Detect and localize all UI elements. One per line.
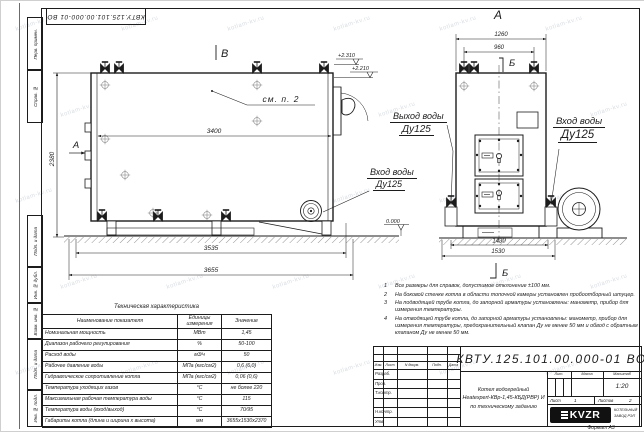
sheet-edge-line (19, 3, 20, 429)
cell: Габариты котла (длина и ширина х высота) (43, 417, 178, 428)
logo-subtitle: КОТЕЛЬНЫЙ ЗАВОД РЭП (614, 408, 637, 420)
cell: Температура воды (вход/выход) (43, 406, 178, 417)
logo-subtitle-line: ЗАВОД РЭП (614, 414, 637, 420)
note-text: На отводящей трубе котла, до запорной ар… (395, 316, 638, 337)
cell: 3655х1530х2370 (222, 417, 272, 428)
col-header: Единицы измерения (178, 315, 222, 329)
role-nkontr: Н.контр. (375, 409, 393, 414)
notes-block: 1Все размеры для справок, допустимое отк… (384, 283, 638, 339)
table-row: Диапазон рабочего регулирования%50-100 (43, 340, 272, 351)
table-row: Габариты котла (длина и ширина х высота)… (43, 417, 272, 428)
col-list: Лист (383, 363, 397, 367)
sheet-label: Лист (550, 398, 561, 403)
col-izm: Изм. (374, 363, 383, 367)
note-item: 1Все размеры для справок, допустимое отк… (384, 283, 638, 290)
role-tkontr: Т.контр. (375, 390, 392, 395)
drawing-sheet: kotlam-kv.rukotlam-kv.rukotlam-kv.rukotl… (0, 0, 644, 432)
cell: Температура уходящих газов (43, 384, 178, 395)
inlet-water-front-label: Вход воды (553, 117, 605, 128)
kvzr-logo: KVZR (550, 407, 611, 423)
role-razrab: Разраб. (375, 371, 390, 376)
note-item: 3На подводящей трубе котла, до запорной … (384, 300, 638, 314)
margin-label: Подп. и дата (33, 350, 38, 379)
margin-cell-podp-data-1: Подп. и дата (27, 215, 43, 268)
margin-label: Инв. № подл. (33, 394, 38, 423)
inlet-water-side-label: Вход воды (367, 168, 417, 179)
inlet-water-side-dn-label: Ду125 (373, 180, 405, 191)
outlet-water-label: Выход воды (390, 112, 447, 123)
table-row: Температура уходящих газов°Сне более 220 (43, 384, 272, 395)
logo-text: KVZR (570, 409, 601, 421)
note-number: 3 (384, 300, 395, 314)
inlet-water-front-dn-label: Ду125 (558, 129, 597, 143)
note-text: На подводящей трубе котла, до запорной а… (395, 300, 638, 314)
format-note: Формат А3 (561, 425, 641, 431)
cell: °С (178, 395, 222, 406)
margin-cell-inv-dubl: Инв. № дубл. (27, 266, 43, 304)
note-number: 4 (384, 316, 395, 337)
cell: 1,45 (222, 329, 272, 340)
role-utv: Утв. (375, 419, 385, 424)
sheets-label: Листов (598, 398, 613, 403)
cell: Номинальная мощность (43, 329, 178, 340)
margin-label: Справ. № (33, 86, 38, 107)
margin-cell-inv-podl: Инв. № подл. (27, 389, 43, 427)
top-doc-number-stamp: КВТУ.125.101.00.000-01 ВО (46, 8, 146, 25)
margin-cell-sprav-n: Справ. № (27, 69, 43, 123)
cell: МПа (кгс/см2) (178, 373, 222, 384)
scale-label: Масштаб (603, 372, 641, 376)
cell: 50 (222, 351, 272, 362)
col-podp: Подп. (427, 363, 447, 367)
table-row: Расход водым3/ч50 (43, 351, 272, 362)
product-line: Heatexpert-КВр-1,45-КБД(РВР) И (462, 394, 544, 402)
cell: % (178, 340, 222, 351)
cell: °С (178, 406, 222, 417)
cell: 70/95 (222, 406, 272, 417)
margin-label: Перв. примен. (33, 29, 38, 60)
col-header: Наименование показателя (43, 315, 178, 329)
sheet-number: 1 (574, 398, 577, 403)
margin-cell-podp-data-2: Подп. и дата (27, 338, 43, 391)
tech-header-row: Наименование показателя Единицы измерени… (43, 315, 272, 329)
cell: м3/ч (178, 351, 222, 362)
margin-cell-perv-primen: Перв. примен. (27, 17, 43, 71)
sheets-number: 2 (629, 398, 632, 403)
product-line: по техническому заданию (470, 403, 537, 411)
note-item: 2На боковой стенке котла в области топоч… (384, 292, 638, 299)
cell: °С (178, 384, 222, 395)
col-header: Значение (222, 315, 272, 329)
table-row: Максимальная рабочая температура воды°С1… (43, 395, 272, 406)
cell: Рабочее давление воды (43, 362, 178, 373)
note-text: Все размеры для справок, допустимое откл… (395, 283, 550, 290)
note-item: 4На отводящей трубе котла, до запорной а… (384, 316, 638, 337)
cell: не более 220 (222, 384, 272, 395)
table-row: Рабочее давление водыМПа (кгс/см2)0,6 (6… (43, 362, 272, 373)
title-block: Изм. Лист N докум. Подп. Дата Разраб. Пр… (373, 346, 642, 427)
cell: Расход воды (43, 351, 178, 362)
mass-label: Масса (571, 372, 603, 376)
product-line: Котел водогрейный (478, 386, 529, 394)
scale-value: 1:20 (603, 383, 641, 390)
table-row: Гидравлическое сопротивление котлаМПа (к… (43, 373, 272, 384)
tech-table-title: Техническая характеристика (42, 304, 271, 310)
cell: Максимальная рабочая температура воды (43, 395, 178, 406)
margin-label: Взам. инв. № (33, 307, 38, 335)
doc-number: КВТУ.125.101.00.000-01 ВО (460, 347, 642, 372)
logo-stripes-icon (561, 411, 568, 419)
cell: Диапазон рабочего регулирования (43, 340, 178, 351)
margin-cell-vzam-inv: Взам. инв. № (27, 302, 43, 340)
note-number: 1 (384, 283, 395, 290)
cell: МВт (178, 329, 222, 340)
role-prov: Пров. (375, 381, 386, 386)
cell: Гидравлическое сопротивление котла (43, 373, 178, 384)
cell: МПа (кгс/см2) (178, 362, 222, 373)
margin-label: Подп. и дата (33, 227, 38, 256)
margin-label: Инв. № дубл. (33, 271, 38, 299)
table-row: Температура воды (вход/выход)°С70/95 (43, 406, 272, 417)
cell: 0,06 (0,6) (222, 373, 272, 384)
cell: мм (178, 417, 222, 428)
table-row: Номинальная мощностьМВт1,45 (43, 329, 272, 340)
note-text: На боковой стенке котла в области топочн… (395, 292, 635, 299)
tech-table: Наименование показателя Единицы измерени… (42, 314, 272, 428)
col-dokum: N докум. (397, 363, 427, 367)
top-doc-number-text: КВТУ.125.101.00.000-01 ВО (47, 13, 145, 20)
lit-label: Лит. (547, 372, 571, 376)
outlet-water-dn-label: Ду125 (399, 124, 434, 136)
cell: 115 (222, 395, 272, 406)
cell: 0,6 (6,0) (222, 362, 272, 373)
cell: 50-100 (222, 340, 272, 351)
note-number: 2 (384, 292, 395, 299)
product-name: Котел водогрейный Heatexpert-КВр-1,45-КБ… (460, 371, 547, 426)
